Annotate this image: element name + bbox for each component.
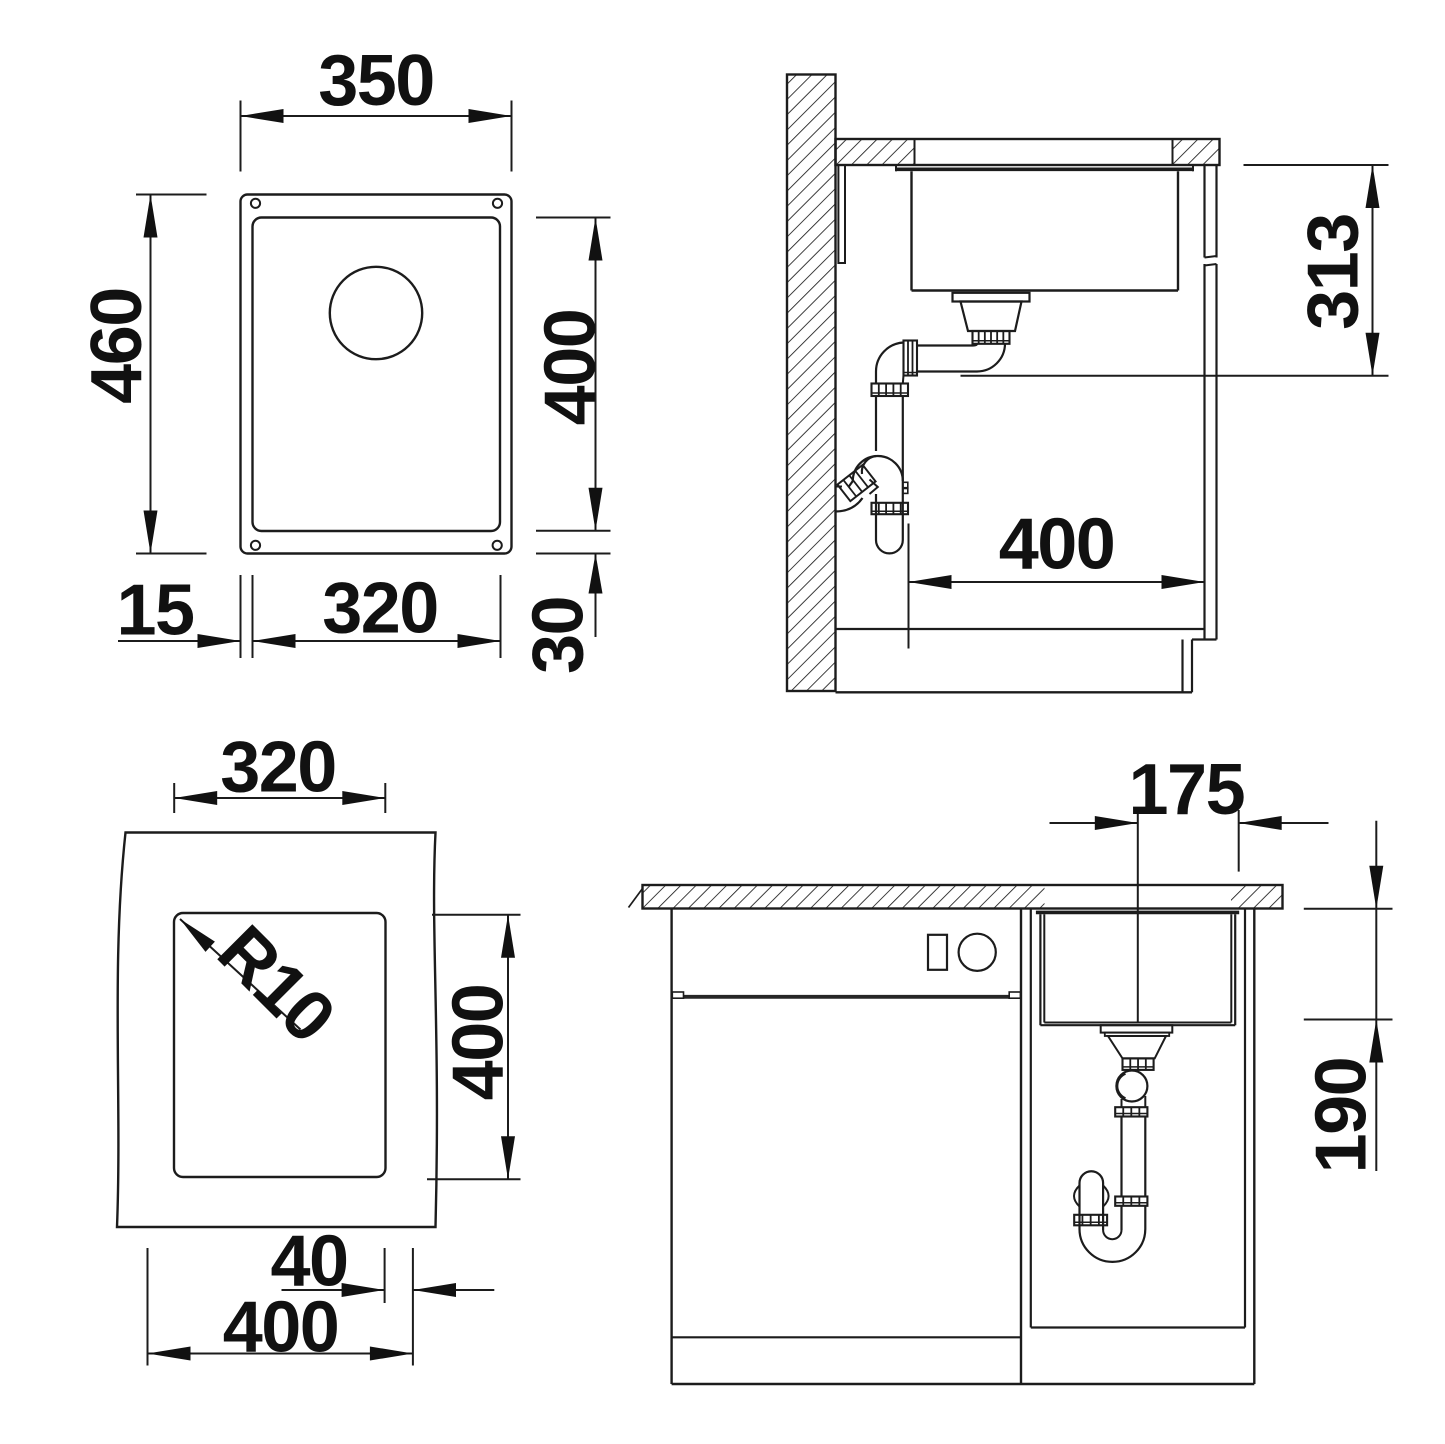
svg-text:15: 15 [116,571,194,651]
svg-text:400: 400 [439,985,519,1101]
svg-text:190: 190 [1301,1058,1381,1174]
svg-text:460: 460 [77,288,157,404]
svg-text:30: 30 [519,597,599,674]
svg-text:313: 313 [1294,214,1374,330]
svg-text:350: 350 [318,41,434,121]
svg-text:320: 320 [322,569,438,649]
svg-text:400: 400 [531,310,611,426]
svg-text:400: 400 [999,505,1115,585]
svg-text:400: 400 [223,1288,339,1368]
svg-text:175: 175 [1128,750,1244,830]
svg-text:320: 320 [220,728,336,808]
